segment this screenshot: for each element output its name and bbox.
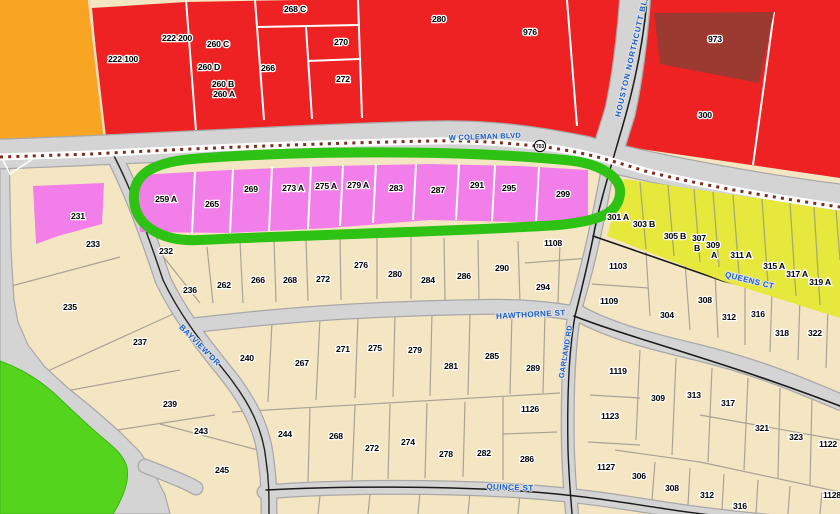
svg-text:291: 291 <box>470 180 484 190</box>
svg-text:272: 272 <box>365 443 379 453</box>
svg-text:313: 313 <box>687 390 701 400</box>
svg-text:267: 267 <box>295 358 309 368</box>
svg-text:245: 245 <box>215 465 229 475</box>
svg-text:1123: 1123 <box>601 411 619 421</box>
svg-text:1122: 1122 <box>819 439 837 449</box>
svg-text:272: 272 <box>336 74 350 84</box>
svg-text:303 B: 303 B <box>633 219 655 229</box>
svg-text:703: 703 <box>536 144 545 150</box>
svg-text:262: 262 <box>217 280 231 290</box>
svg-text:269: 269 <box>244 184 258 194</box>
svg-text:222 100: 222 100 <box>108 54 138 64</box>
svg-text:270: 270 <box>334 37 348 47</box>
svg-text:323: 323 <box>789 432 803 442</box>
svg-text:317: 317 <box>721 398 735 408</box>
svg-text:237: 237 <box>133 337 147 347</box>
svg-text:308: 308 <box>665 483 679 493</box>
svg-text:281: 281 <box>444 361 458 371</box>
svg-text:240: 240 <box>240 353 254 363</box>
svg-text:282: 282 <box>477 448 491 458</box>
svg-text:976: 976 <box>523 27 537 37</box>
svg-text:299: 299 <box>556 189 570 199</box>
svg-text:243: 243 <box>194 426 208 436</box>
svg-text:287: 287 <box>431 185 445 195</box>
svg-text:286: 286 <box>457 271 471 281</box>
svg-text:316: 316 <box>751 309 765 319</box>
svg-text:274: 274 <box>401 437 415 447</box>
svg-text:1126: 1126 <box>521 404 539 414</box>
svg-text:268 C: 268 C <box>284 4 307 14</box>
svg-text:321: 321 <box>755 423 769 433</box>
svg-text:278: 278 <box>439 449 453 459</box>
svg-text:271: 271 <box>336 344 350 354</box>
svg-text:273 A: 273 A <box>282 183 305 193</box>
svg-text:235: 235 <box>63 302 77 312</box>
svg-text:1128: 1128 <box>823 490 840 500</box>
svg-text:272: 272 <box>316 274 330 284</box>
svg-text:312: 312 <box>722 312 736 322</box>
svg-text:312: 312 <box>700 490 714 500</box>
svg-text:239: 239 <box>163 399 177 409</box>
svg-text:260 B: 260 B <box>212 79 234 89</box>
svg-text:311 A: 311 A <box>730 250 752 260</box>
svg-text:233: 233 <box>86 239 100 249</box>
svg-text:283: 283 <box>389 183 403 193</box>
svg-text:259 A: 259 A <box>155 194 178 204</box>
svg-text:322: 322 <box>808 328 822 338</box>
svg-text:231: 231 <box>71 211 85 221</box>
svg-text:268: 268 <box>283 275 297 285</box>
svg-text:222 200: 222 200 <box>162 33 192 43</box>
svg-text:319 A: 319 A <box>809 277 832 287</box>
svg-text:1103: 1103 <box>609 261 627 271</box>
svg-text:B: B <box>694 243 700 253</box>
svg-text:260 D: 260 D <box>198 62 220 72</box>
svg-text:268: 268 <box>329 431 343 441</box>
svg-text:279: 279 <box>408 345 422 355</box>
svg-text:301 A: 301 A <box>607 212 630 222</box>
svg-text:279 A: 279 A <box>347 180 370 190</box>
svg-text:236: 236 <box>183 285 197 295</box>
svg-text:300: 300 <box>698 110 712 120</box>
svg-text:275: 275 <box>368 343 382 353</box>
svg-text:1108: 1108 <box>544 238 562 248</box>
svg-text:294: 294 <box>536 282 550 292</box>
svg-text:308: 308 <box>698 295 712 305</box>
svg-text:260 A: 260 A <box>213 89 236 99</box>
svg-text:285: 285 <box>485 351 499 361</box>
svg-text:266: 266 <box>261 63 275 73</box>
svg-text:315 A: 315 A <box>763 261 786 271</box>
svg-text:286: 286 <box>520 454 534 464</box>
svg-text:309: 309 <box>651 393 665 403</box>
svg-text:317 A: 317 A <box>786 269 809 279</box>
svg-text:973: 973 <box>708 34 722 44</box>
svg-text:276: 276 <box>354 260 368 270</box>
svg-text:265: 265 <box>205 199 219 209</box>
svg-text:318: 318 <box>775 328 789 338</box>
svg-text:1119: 1119 <box>609 366 627 376</box>
svg-text:275 A: 275 A <box>315 181 338 191</box>
svg-text:244: 244 <box>278 429 292 439</box>
svg-text:290: 290 <box>495 263 509 273</box>
svg-text:1109: 1109 <box>600 296 618 306</box>
svg-text:309: 309 <box>706 240 720 250</box>
svg-text:232: 232 <box>159 246 173 256</box>
svg-text:307: 307 <box>692 233 706 243</box>
svg-text:316: 316 <box>733 501 747 511</box>
svg-text:260 C: 260 C <box>207 39 230 49</box>
svg-text:295: 295 <box>502 183 516 193</box>
svg-text:QUINCE ST: QUINCE ST <box>486 482 533 493</box>
svg-text:304: 304 <box>660 310 674 320</box>
svg-text:305 B: 305 B <box>664 231 686 241</box>
svg-text:284: 284 <box>421 275 435 285</box>
svg-text:280: 280 <box>388 269 402 279</box>
svg-text:A: A <box>711 250 718 260</box>
svg-text:266: 266 <box>251 275 265 285</box>
svg-text:1127: 1127 <box>597 462 615 472</box>
svg-text:289: 289 <box>526 363 540 373</box>
svg-text:306: 306 <box>632 471 646 481</box>
svg-text:280: 280 <box>432 14 446 24</box>
